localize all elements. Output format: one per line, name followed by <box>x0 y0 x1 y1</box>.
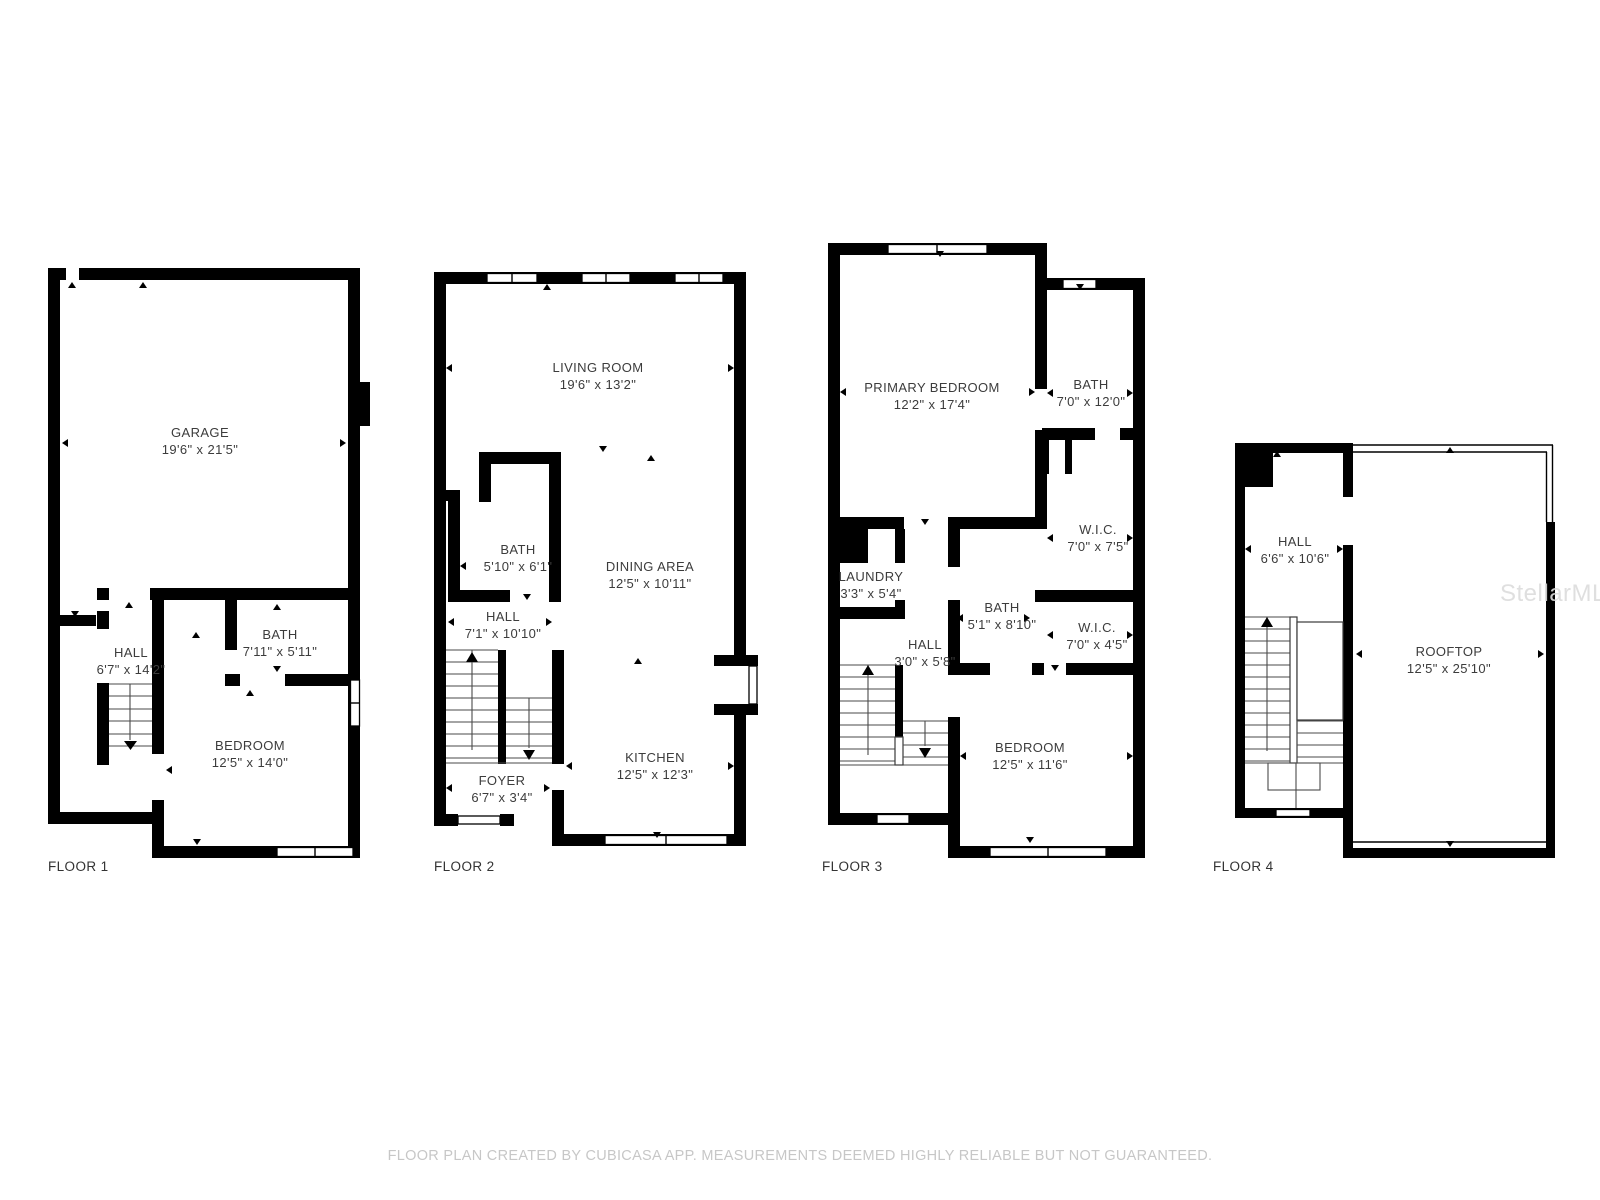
room-label-bedroom-f3: BEDROOM 12'5" x 11'6" <box>992 739 1068 773</box>
floor-2-label: FLOOR 2 <box>434 859 495 874</box>
room-dims: 5'10" x 6'1" <box>484 558 553 575</box>
room-label-hall-f3: HALL 3'0" x 5'8" <box>894 636 955 670</box>
room-name: FOYER <box>471 772 532 789</box>
room-dims: 3'0" x 5'8" <box>894 653 955 670</box>
floor-1-label: FLOOR 1 <box>48 859 109 874</box>
room-name: HALL <box>1261 533 1330 550</box>
floor-1-walls <box>48 268 370 858</box>
room-dims: 7'11" x 5'11" <box>243 643 318 660</box>
room-label-bath-f2: BATH 5'10" x 6'1" <box>484 541 553 575</box>
room-name: HALL <box>97 644 166 661</box>
room-name: W.I.C. <box>1067 521 1128 538</box>
floor-4-windows <box>1276 810 1310 817</box>
room-name: BEDROOM <box>212 737 289 754</box>
room-label-hall-f1: HALL 6'7" x 14'2" <box>97 644 166 678</box>
room-label-wic-2: W.I.C. 7'0" x 4'5" <box>1066 619 1127 653</box>
room-label-garage: GARAGE 19'6" x 21'5" <box>162 424 239 458</box>
room-label-bedroom-f1: BEDROOM 12'5" x 14'0" <box>212 737 289 771</box>
room-label-bath-f1: BATH 7'11" x 5'11" <box>243 626 318 660</box>
room-label-wic-1: W.I.C. 7'0" x 7'5" <box>1067 521 1128 555</box>
room-name: BATH <box>968 599 1037 616</box>
floor-plan-drawing <box>0 0 1600 1200</box>
room-label-laundry: LAUNDRY 3'3" x 5'4" <box>839 568 904 602</box>
room-label-living-room: LIVING ROOM 19'6" x 13'2" <box>552 359 643 393</box>
floor-1-windows <box>277 680 360 857</box>
room-dims: 12'5" x 11'6" <box>992 756 1068 773</box>
room-dims: 6'7" x 3'4" <box>471 789 532 806</box>
floor-1-staircase <box>109 684 152 750</box>
room-label-hall-f4: HALL 6'6" x 10'6" <box>1261 533 1330 567</box>
room-label-bath-f3-top: BATH 7'0" x 12'0" <box>1057 376 1126 410</box>
room-name: BATH <box>243 626 318 643</box>
room-name: KITCHEN <box>617 749 694 766</box>
room-label-primary-bedroom: PRIMARY BEDROOM 12'2" x 17'4" <box>864 379 1000 413</box>
room-name: DINING AREA <box>606 558 694 575</box>
room-dims: 7'1" x 10'10" <box>465 625 542 642</box>
room-dims: 12'5" x 12'3" <box>617 766 694 783</box>
stellar-mls-watermark: StellarMLS <box>1500 580 1600 608</box>
room-dims: 12'5" x 14'0" <box>212 754 289 771</box>
room-dims: 6'7" x 14'2" <box>97 661 166 678</box>
floor-plan-page: { "floors": [ { "label": "FLOOR 1", "roo… <box>0 0 1600 1200</box>
room-dims: 7'0" x 4'5" <box>1066 636 1127 653</box>
room-label-kitchen: KITCHEN 12'5" x 12'3" <box>617 749 694 783</box>
room-dims: 3'3" x 5'4" <box>839 585 904 602</box>
room-dims: 5'1" x 8'10" <box>968 616 1037 633</box>
room-dims: 12'5" x 10'11" <box>606 575 694 592</box>
floor-3-label: FLOOR 3 <box>822 859 883 874</box>
room-name: W.I.C. <box>1066 619 1127 636</box>
room-label-hall-f2: HALL 7'1" x 10'10" <box>465 608 542 642</box>
room-label-rooftop: ROOFTOP 12'5" x 25'10" <box>1407 643 1491 677</box>
room-dims: 12'2" x 17'4" <box>864 396 1000 413</box>
room-label-bath-f3-mid: BATH 5'1" x 8'10" <box>968 599 1037 633</box>
floor-4-walls <box>1235 443 1555 858</box>
room-name: BEDROOM <box>992 739 1068 756</box>
room-dims: 7'0" x 12'0" <box>1057 393 1126 410</box>
room-name: GARAGE <box>162 424 239 441</box>
room-dims: 19'6" x 21'5" <box>162 441 239 458</box>
room-label-dining-area: DINING AREA 12'5" x 10'11" <box>606 558 694 592</box>
room-name: HALL <box>894 636 955 653</box>
room-dims: 7'0" x 7'5" <box>1067 538 1128 555</box>
room-name: LAUNDRY <box>839 568 904 585</box>
room-dims: 19'6" x 13'2" <box>552 376 643 393</box>
room-label-foyer: FOYER 6'7" x 3'4" <box>471 772 532 806</box>
room-dims: 12'5" x 25'10" <box>1407 660 1491 677</box>
room-name: PRIMARY BEDROOM <box>864 379 1000 396</box>
room-name: HALL <box>465 608 542 625</box>
room-dims: 6'6" x 10'6" <box>1261 550 1330 567</box>
floor-3-staircase <box>840 665 948 765</box>
cubicasa-disclaimer: FLOOR PLAN CREATED BY CUBICASA APP. MEAS… <box>388 1148 1213 1164</box>
room-name: ROOFTOP <box>1407 643 1491 660</box>
room-name: LIVING ROOM <box>552 359 643 376</box>
room-name: BATH <box>1057 376 1126 393</box>
room-name: BATH <box>484 541 553 558</box>
floor-4-staircase <box>1245 617 1343 808</box>
floor-4-label: FLOOR 4 <box>1213 859 1274 874</box>
